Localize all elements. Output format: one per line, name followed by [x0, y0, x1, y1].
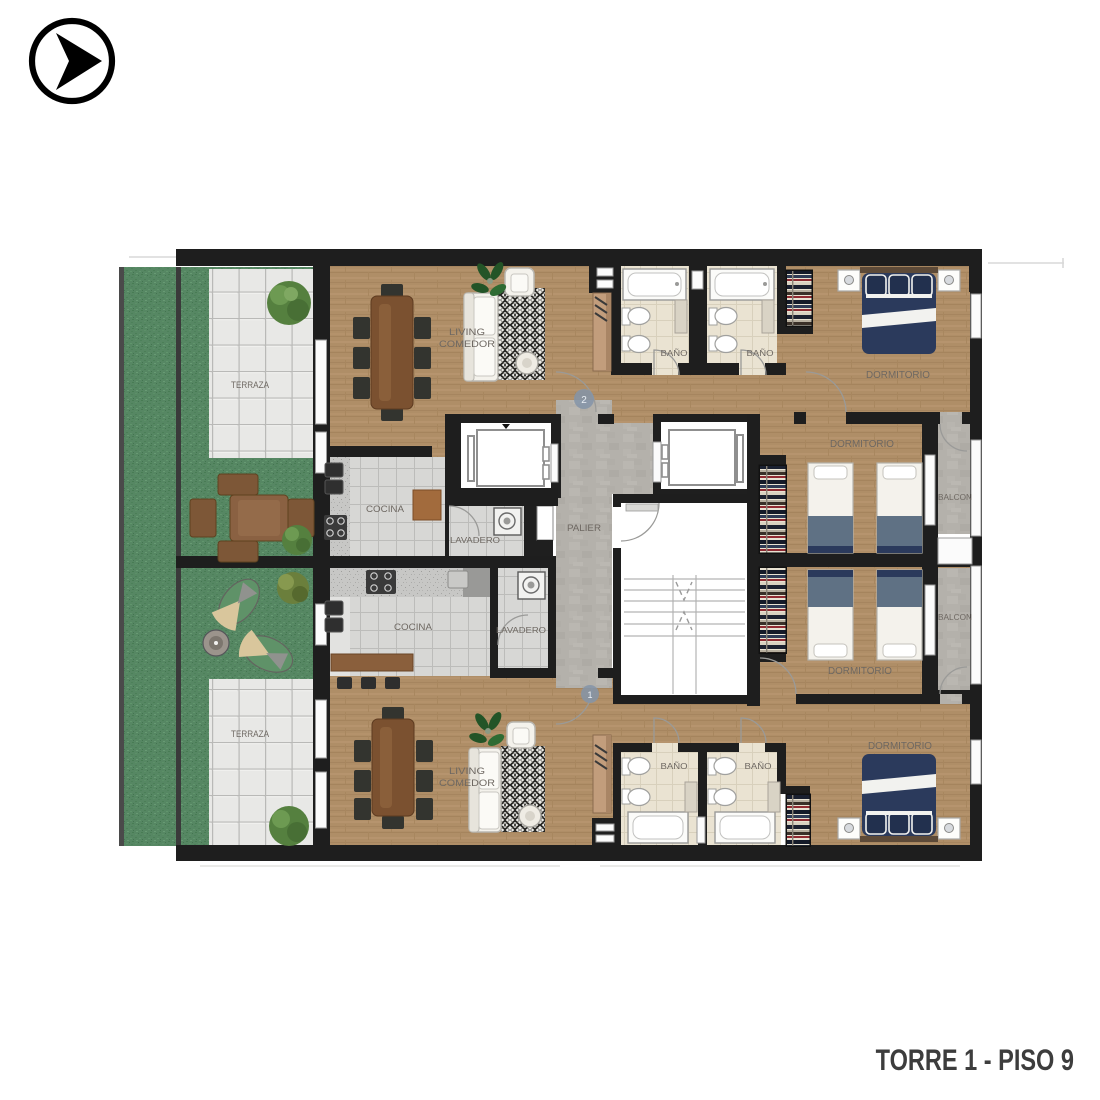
svg-text:BALCON: BALCON [938, 493, 972, 502]
svg-text:DORMITORIO: DORMITORIO [828, 666, 892, 677]
svg-text:BAÑO: BAÑO [745, 761, 772, 771]
svg-text:COMEDOR: COMEDOR [439, 339, 495, 350]
svg-text:LAVADERO: LAVADERO [450, 535, 500, 545]
svg-text:BAÑO: BAÑO [661, 761, 688, 771]
svg-text:DORMITORIO: DORMITORIO [868, 741, 932, 752]
svg-text:PALIER: PALIER [567, 523, 601, 534]
svg-text:BALCON: BALCON [938, 613, 972, 622]
svg-text:TERRAZA: TERRAZA [231, 380, 270, 391]
svg-text:TORRE 1 - PISO 9: TORRE 1 - PISO 9 [876, 1043, 1074, 1076]
svg-text:COCINA: COCINA [394, 622, 433, 633]
svg-text:TERRAZA: TERRAZA [231, 729, 270, 740]
svg-text:LIVING: LIVING [449, 327, 485, 338]
svg-text:COMEDOR: COMEDOR [439, 778, 495, 789]
svg-text:BAÑO: BAÑO [661, 348, 688, 358]
svg-text:LIVING: LIVING [449, 766, 485, 777]
svg-text:2: 2 [581, 395, 587, 406]
svg-text:1: 1 [587, 690, 592, 700]
svg-text:BAÑO: BAÑO [747, 348, 774, 358]
svg-text:COCINA: COCINA [366, 504, 405, 515]
svg-text:DORMITORIO: DORMITORIO [866, 370, 930, 381]
svg-text:DORMITORIO: DORMITORIO [830, 439, 894, 450]
svg-text:LAVADERO: LAVADERO [496, 625, 546, 635]
